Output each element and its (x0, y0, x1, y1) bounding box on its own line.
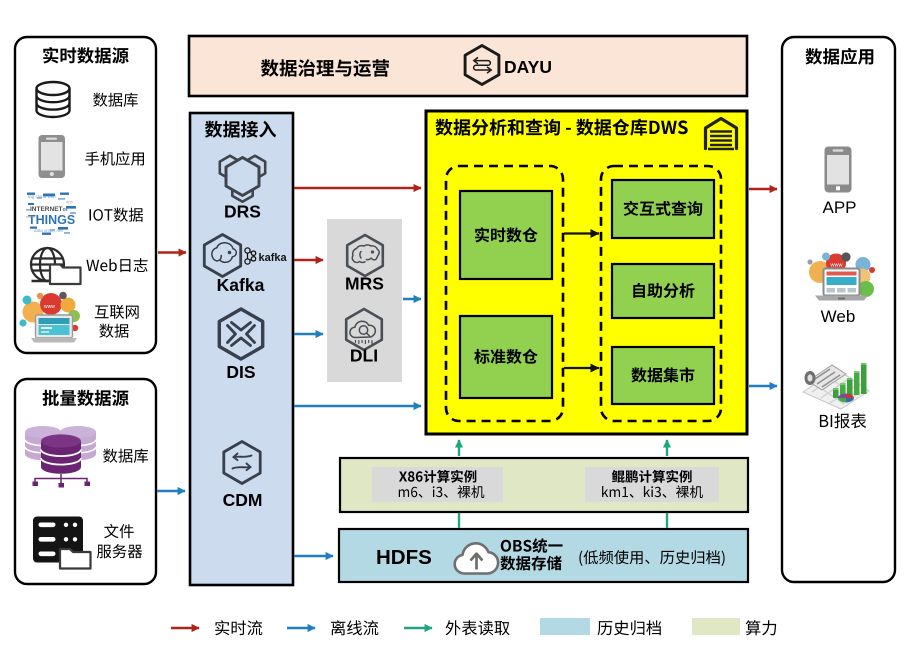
svg-text:APP: APP (822, 198, 856, 217)
svg-text:kafka: kafka (259, 252, 288, 264)
svg-text:www: www (44, 304, 55, 310)
svg-text:DIS: DIS (226, 362, 255, 382)
svg-text:Kafka: Kafka (217, 275, 265, 295)
svg-text:app: app (66, 199, 73, 204)
svg-text:HDFS: HDFS (376, 546, 432, 569)
svg-text:THINGS: THINGS (28, 213, 75, 227)
svg-text:DAYU: DAYU (504, 57, 552, 77)
svg-text:m2m: m2m (26, 214, 36, 219)
svg-text:CDM: CDM (223, 490, 263, 510)
svg-text:DRS: DRS (224, 202, 261, 222)
svg-text:Web: Web (821, 307, 856, 326)
svg-text:DLI: DLI (350, 346, 378, 366)
svg-text:INTERNETof: INTERNETof (30, 206, 68, 213)
svg-text:MRS: MRS (345, 274, 384, 294)
